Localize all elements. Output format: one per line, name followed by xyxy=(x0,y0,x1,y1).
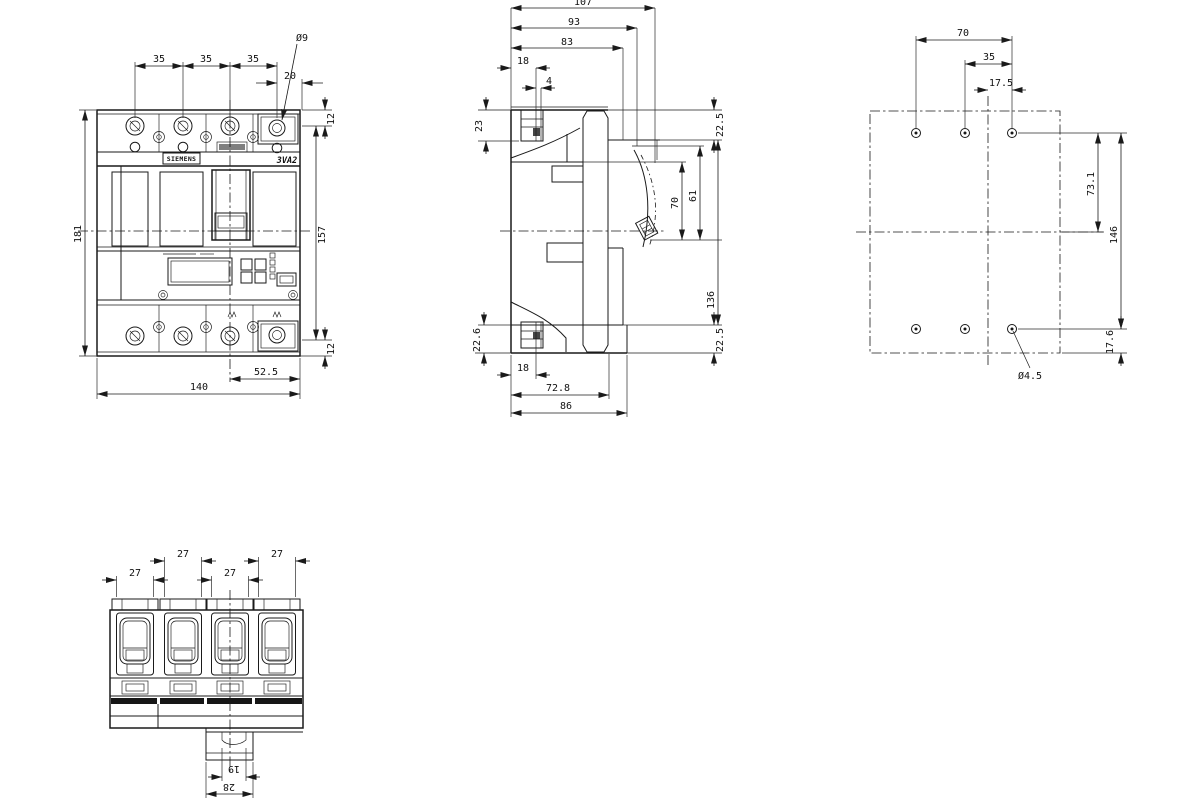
dim-clip-inner: 19 xyxy=(228,763,240,774)
front-dimensions: 35 35 35 20 Ø9 12 157 12 181 52.5 140 xyxy=(73,32,337,399)
etu-button xyxy=(255,272,266,283)
dim-terminal-hole-dia: Ø9 xyxy=(296,32,308,44)
side-view: 107 93 83 18 4 23 22.5 70 61 136 22.6 22… xyxy=(472,0,726,417)
terminal-cavity-4 xyxy=(259,613,296,675)
dim-terminal-top: 18 xyxy=(517,56,529,67)
dim-pole-pitch-1: 35 xyxy=(153,54,165,65)
side-body xyxy=(475,107,722,353)
dim-handle-rear: 61 xyxy=(688,190,699,202)
dim-depth-base: 86 xyxy=(560,401,572,412)
terminal-cavity-1 xyxy=(117,613,154,675)
dim-hole-span-h: 70 xyxy=(957,28,969,39)
dim-center-to-edge: 52.5 xyxy=(254,367,278,378)
dim-total-height: 181 xyxy=(73,225,84,243)
terminal-cavity-2 xyxy=(165,613,202,675)
dim-center-offset: 17.5 xyxy=(989,78,1013,89)
front-bottom-terminals xyxy=(126,312,298,351)
dim-depth-front: 83 xyxy=(561,37,573,48)
front-trip-unit xyxy=(159,253,298,300)
dim-handle-front: 70 xyxy=(670,197,681,209)
drilling-dimensions: 70 35 17.5 73.1 146 17.6 Ø4.5 xyxy=(916,28,1127,382)
dim-depth-body: 72.8 xyxy=(546,383,570,394)
dim-pad-bottom: 12 xyxy=(326,343,337,355)
dim-cavity-1: 27 xyxy=(129,568,141,579)
bottom-view: 27 27 27 27 19 28 xyxy=(102,549,310,798)
dim-terminal-bottom: 18 xyxy=(517,363,529,374)
dim-total-width: 140 xyxy=(190,382,208,393)
dim-pole-pitch-2: 35 xyxy=(200,54,212,65)
dim-pad-top: 12 xyxy=(326,113,337,125)
dim-hole-to-center: 73.1 xyxy=(1086,172,1097,196)
dim-cavity-4: 27 xyxy=(271,549,283,560)
brand-label: SIEMENS xyxy=(167,155,197,163)
dim-inner-height: 157 xyxy=(317,226,328,244)
model-label: 3VA2 xyxy=(276,156,297,166)
dim-bottom-offset: 17.6 xyxy=(1105,330,1116,354)
dim-gap: 4 xyxy=(546,76,552,87)
dim-depth-escutcheon: 93 xyxy=(568,17,580,28)
front-handle-area xyxy=(112,170,296,246)
dim-depth-max: 107 xyxy=(574,0,592,8)
dim-cavity-2: 27 xyxy=(177,549,189,560)
side-dimensions: 107 93 83 18 4 23 22.5 70 61 136 22.6 22… xyxy=(472,0,726,417)
etu-display xyxy=(168,258,232,285)
etu-button xyxy=(241,259,252,270)
bottom-dimensions: 27 27 27 27 19 28 xyxy=(102,549,310,798)
drilling-view: 70 35 17.5 73.1 146 17.6 Ø4.5 xyxy=(856,28,1127,382)
bottom-body xyxy=(110,599,303,760)
drawing-canvas: SIEMENS 3VA2 xyxy=(0,0,1200,800)
dim-hole-half-span: 35 xyxy=(983,52,995,63)
etu-button xyxy=(241,272,252,283)
dim-rear-bottom: 22.6 xyxy=(472,328,483,352)
dim-bottom-right: 22.5 xyxy=(715,328,726,352)
etu-button xyxy=(255,259,266,270)
mounting-holes xyxy=(912,129,1017,334)
dim-top-right: 22.5 xyxy=(715,113,726,137)
dim-pole-pitch-3: 35 xyxy=(247,54,259,65)
lug-mark xyxy=(228,312,236,317)
dim-cavity-3: 27 xyxy=(224,568,236,579)
dim-rear-top: 23 xyxy=(474,120,485,132)
front-view: SIEMENS 3VA2 xyxy=(73,32,337,399)
front-body xyxy=(97,110,300,356)
lug-mark xyxy=(273,312,281,317)
dim-hole-dia: Ø4.5 xyxy=(1018,370,1042,382)
technical-drawing-page: SIEMENS 3VA2 xyxy=(0,0,1200,800)
front-top-terminals xyxy=(126,114,298,153)
dim-hole-span-v: 146 xyxy=(1109,226,1120,244)
dim-front-height: 136 xyxy=(706,291,717,309)
dim-clip-outer: 28 xyxy=(223,781,235,792)
